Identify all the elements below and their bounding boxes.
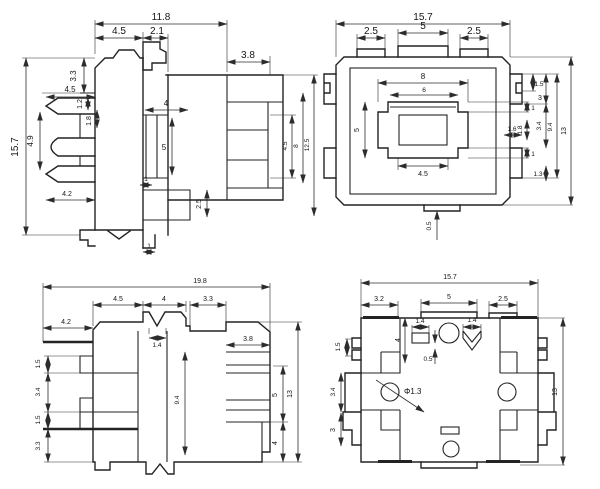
dim-inner-height-label: 4.5 [282, 141, 289, 150]
dim-term-span-label: 5 [272, 393, 279, 397]
part-outline [343, 312, 556, 468]
dim-pin-length-label: 4.5 [64, 85, 76, 94]
dim-lead-length-label: 4.2 [61, 319, 71, 326]
dim-mid-height-label: 8 [293, 144, 300, 148]
dim-frame-height-label: 5 [354, 128, 361, 132]
dim-slot-width-label: 1.4 [415, 318, 424, 325]
dim-total-height-label: 13 [552, 388, 559, 396]
dim-lug-width-label: 1.6 [507, 126, 516, 133]
dim-pin-gap-label: 1.2 [77, 99, 84, 109]
view-top: 15.7 2.5 5 2.5 8 6 5 1 1.8 1 4.5 1.6 1.5 [324, 12, 573, 240]
dim-cap-width-label: 4.5 [112, 26, 126, 37]
dim-step-width-label: 2.1 [150, 26, 164, 37]
dim-step-top-label: 1 [531, 105, 535, 112]
dim-total-width-label: 15.7 [443, 274, 457, 281]
dim-frame-width-label: 8 [421, 72, 426, 81]
dim-top-w2-label: 5 [447, 294, 451, 301]
dim-lug-span-label: 9.4 [547, 122, 554, 131]
dim-hole-dia-label: Φ1.3 [404, 387, 422, 396]
dim-total-width-label: 11.8 [152, 12, 171, 23]
dim-pin-pitch-label: 4.9 [26, 135, 35, 147]
dim-right-width-label: 3.8 [241, 50, 255, 61]
dim-block-height-label: 2.5 [196, 199, 203, 209]
dim-tab-offset-label: 0.5 [426, 221, 433, 230]
dim-base-width-label: 4.5 [418, 171, 428, 178]
dim-right-width-label: 3.8 [243, 336, 253, 343]
dimensions: 11.8 4.5 2.1 3.8 3.3 4.5 1.2 1.8 4.9 15.… [10, 12, 318, 252]
dim-post-height-label: 4 [395, 338, 402, 342]
dim-slot-offset-label: 0.5 [423, 356, 432, 363]
view-side-section: 19.8 4.5 4 3.3 4.2 3.8 1.4 1.5 3.4 1.5 3… [35, 278, 302, 474]
dim-lug-bottom-label: 1.3 [533, 171, 542, 178]
dim-foot-width-label: 1 [147, 243, 151, 250]
dim-base-height-label: 3.3 [35, 441, 42, 450]
dim-top-w1-label: 4.5 [113, 296, 123, 303]
dim-lug-gap-label: 3.4 [536, 121, 543, 130]
dim-slot-height-label: 5 [162, 143, 167, 152]
dim-slot-thick-label: 1 [144, 176, 148, 183]
dim-notch-width-label: 1.4 [152, 342, 161, 349]
dim-pin-thick-label: 1.8 [86, 116, 93, 126]
dim-total-width-label: 19.8 [193, 278, 207, 285]
dim-lug-notch-label: 1.5 [534, 81, 543, 88]
view-bottom: 15.7 3.2 5 2.5 1.5 1.4 0.5 4 1.4 Φ1.3 3.… [330, 274, 565, 468]
dim-tab-right-label: 2.5 [467, 26, 481, 37]
dimensions: 15.7 2.5 5 2.5 8 6 5 1 1.8 1 4.5 1.6 1.5 [336, 12, 573, 240]
dim-step-bottom-label: 1 [531, 151, 535, 158]
dim-tab-center-label: 5 [420, 21, 426, 32]
dim-mark-width-label: 1.4 [467, 317, 476, 324]
dim-lower-height-label: 4 [272, 441, 279, 445]
dim-term-t2-label: 1.5 [35, 415, 42, 424]
dim-side-tab-label: 1.5 [335, 342, 342, 351]
dim-slot-width-label: 4 [164, 99, 169, 108]
dim-tail-length-label: 4.2 [62, 191, 72, 198]
dim-total-height-label: 13 [287, 390, 294, 398]
dim-total-height-label: 15.7 [10, 137, 21, 157]
dim-lug-top-label: 3 [538, 95, 542, 102]
dim-side-height-label: 12.5 [304, 138, 311, 151]
dim-term-gap-label: 3.4 [35, 387, 42, 396]
engineering-drawing: 11.8 4.5 2.1 3.8 3.3 4.5 1.2 1.8 4.9 15.… [0, 0, 600, 489]
dim-collar-height-label: 3.3 [69, 70, 78, 82]
dim-top-w2-label: 4 [162, 296, 166, 303]
dimensions: 15.7 3.2 5 2.5 1.5 1.4 0.5 4 1.4 Φ1.3 3.… [330, 274, 565, 465]
dim-side-h2-label: 3 [330, 428, 337, 432]
view-front-section: 11.8 4.5 2.1 3.8 3.3 4.5 1.2 1.8 4.9 15.… [10, 12, 318, 252]
part-outline [43, 312, 270, 474]
dim-term-t1-label: 1.5 [35, 359, 42, 368]
dim-total-height-label: 13 [561, 127, 568, 135]
dim-tab-left-label: 2.5 [364, 26, 378, 37]
dim-top-w1-label: 3.2 [374, 296, 384, 303]
dim-top-w3-label: 3.3 [203, 296, 213, 303]
dim-side-h1-label: 3.4 [330, 387, 337, 396]
dim-step-mid-label: 1.8 [517, 125, 524, 134]
dim-inner-width-label: 6 [422, 87, 426, 94]
dim-body-height-label: 9.4 [174, 395, 181, 404]
dim-top-w3-label: 2.5 [498, 296, 508, 303]
